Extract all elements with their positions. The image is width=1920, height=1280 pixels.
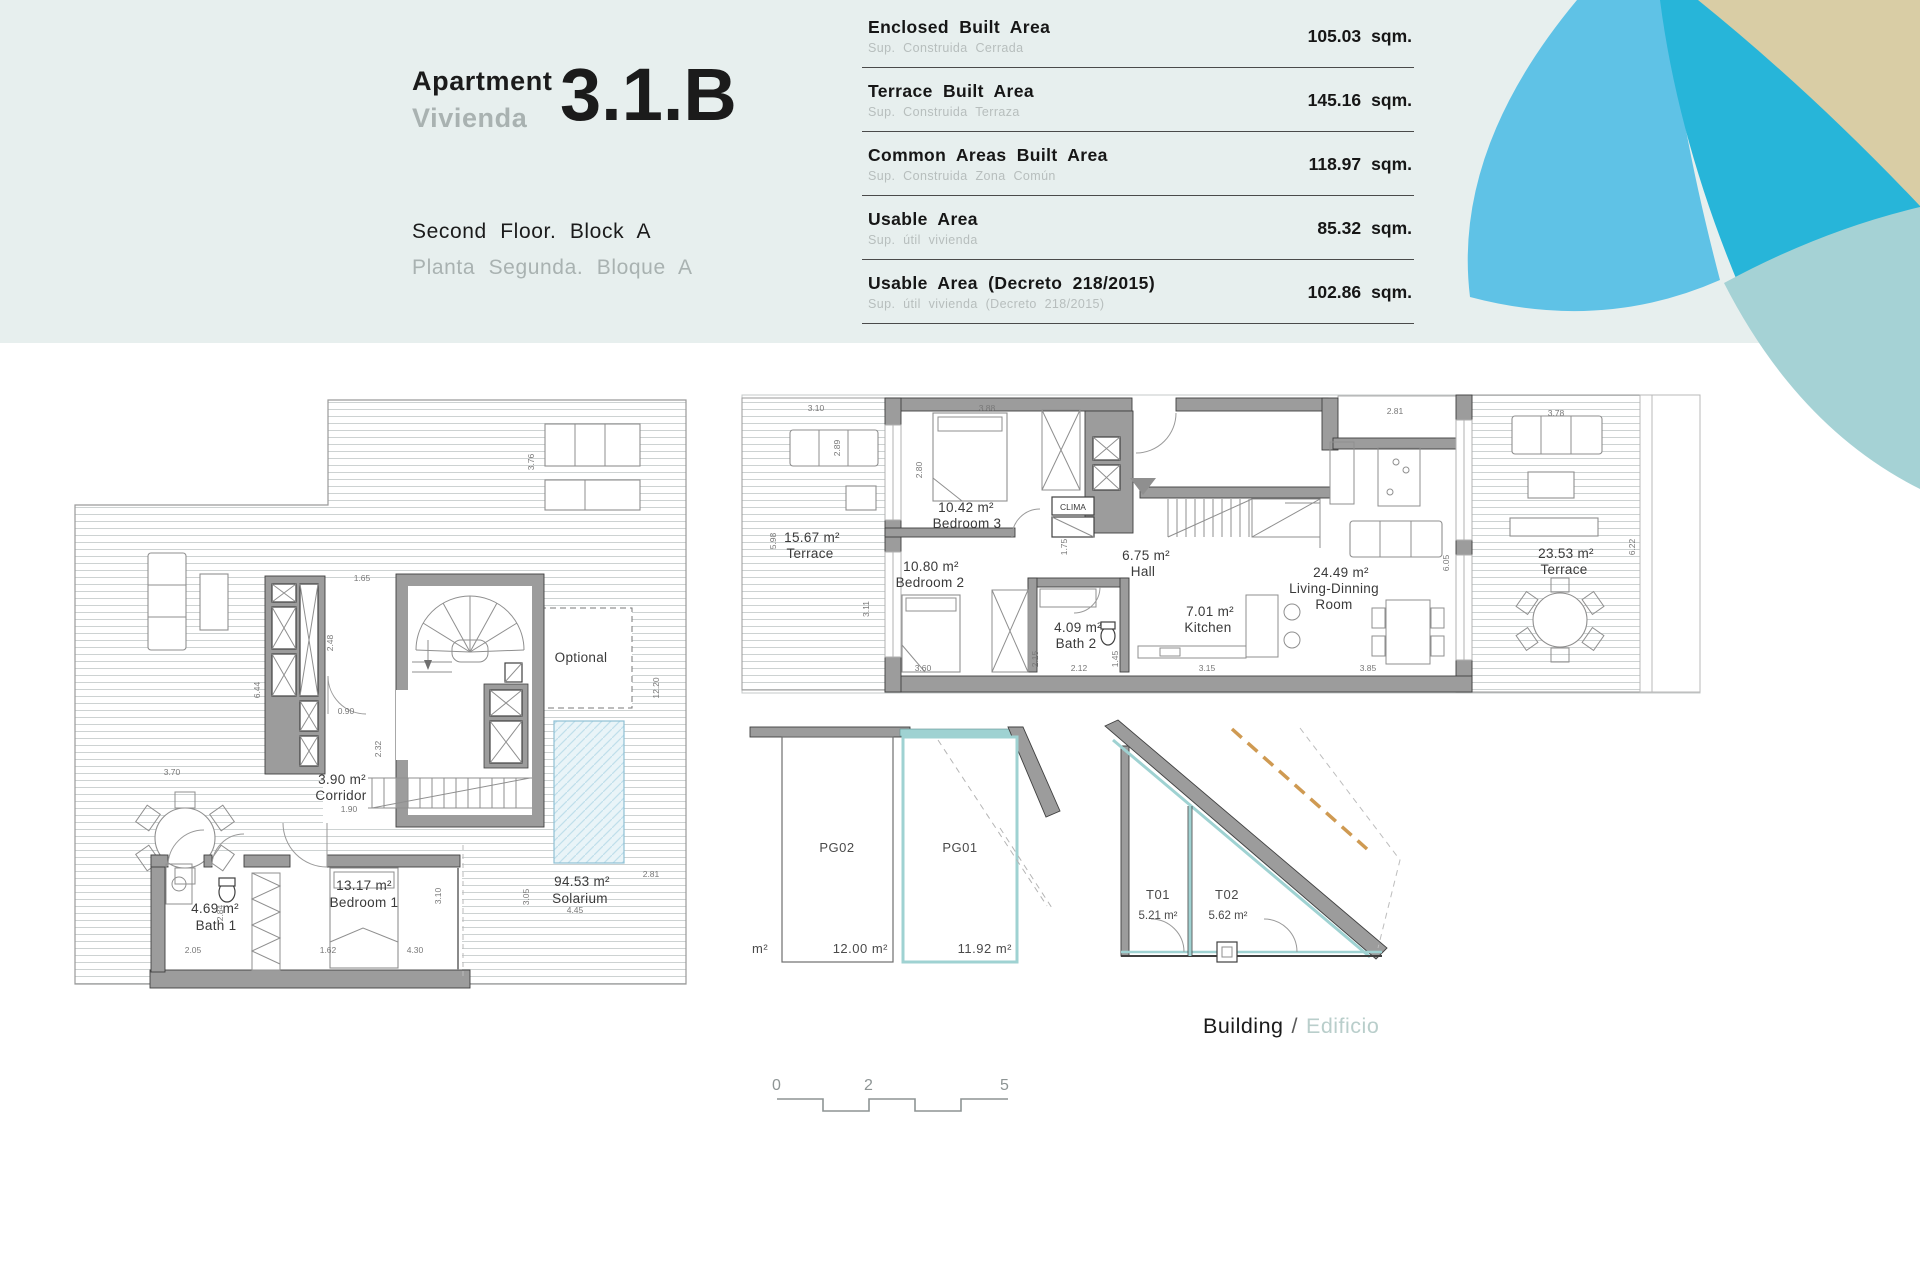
svg-text:1.62: 1.62 [320,945,337,955]
svg-text:3.15: 3.15 [1199,663,1216,673]
row-label-es: Sup. útil vivienda [868,233,978,247]
parking-area: 12.00 m² [833,941,888,956]
room-label: 15.67 m² [784,530,840,545]
svg-text:1.45: 1.45 [1110,650,1120,667]
storage-area: 5.21 m² [1139,910,1178,922]
svg-text:2.81: 2.81 [1387,406,1404,416]
area-summary-table: Enclosed Built Area Sup. Construida Cerr… [862,4,1414,324]
row-label-es: Sup. Construida Terraza [868,105,1034,119]
parking-plan: PG02 PG01 12.00 m² 11.92 m² m² [750,715,1070,970]
svg-text:2.05: 2.05 [185,945,202,955]
apartment-label-es: Vivienda [412,103,527,134]
row-label-es: Sup. Construida Cerrada [868,41,1050,55]
floor-label-en: Second Floor. Block A [412,220,651,244]
plunge-pool [554,721,624,863]
room-label: Terrace [1540,562,1587,577]
storage-plan: T01 T02 5.21 m² 5.62 m² [1095,715,1420,975]
svg-text:1.65: 1.65 [354,573,371,583]
room-label: Living-Dinning [1289,581,1379,596]
row-value: 145.16sqm. [1308,90,1412,111]
svg-text:2.89: 2.89 [832,439,842,456]
storage-label: T02 [1215,887,1239,902]
svg-text:3.76: 3.76 [526,453,536,470]
floor-plan-second-floor: 15.67 m² Terrace 10.42 m² Bedroom 3 10.8… [740,390,1702,702]
svg-text:2.12: 2.12 [1071,663,1088,673]
scale-tick: 0 [772,1077,781,1094]
svg-text:4.30: 4.30 [407,945,424,955]
svg-text:5.98: 5.98 [768,532,778,549]
table-row: Usable Area (Decreto 218/2015) Sup. útil… [862,260,1414,324]
room-label: Corridor [315,788,366,803]
svg-text:2.84: 2.84 [215,904,225,921]
svg-text:6.22: 6.22 [1627,538,1637,555]
room-label: 94.53 m² [554,874,610,889]
parking-label: PG02 [819,840,854,855]
room-label: 3.90 m² [318,772,366,787]
room-label: Room [1315,597,1352,612]
svg-text:0.90: 0.90 [338,706,355,716]
svg-text:3.88: 3.88 [979,403,996,413]
row-value: 105.03sqm. [1308,26,1412,47]
svg-text:3.10: 3.10 [433,887,443,904]
room-label: Solarium [552,891,608,906]
parking-label: PG01 [942,840,977,855]
row-label-es: Sup. útil vivienda (Decreto 218/2015) [868,297,1155,311]
table-row: Usable Area Sup. útil vivienda 85.32sqm. [862,196,1414,260]
svg-text:2.48: 2.48 [325,634,335,651]
svg-text:12.20: 12.20 [651,677,661,699]
room-label: Hall [1131,564,1155,579]
row-label-en: Enclosed Built Area [868,17,1050,38]
room-label: Bedroom 3 [933,516,1002,531]
row-value: 118.97sqm. [1309,154,1412,175]
row-label-en: Usable Area (Decreto 218/2015) [868,273,1155,294]
svg-text:2.80: 2.80 [914,461,924,478]
svg-text:3.85: 3.85 [1360,663,1377,673]
scale-tick: 2 [864,1077,873,1094]
room-label: 10.80 m² [903,559,959,574]
svg-text:1.90: 1.90 [341,804,358,814]
room-label: 7.01 m² [1186,604,1234,619]
room-label: Terrace [786,546,833,561]
parking-area: 11.92 m² [958,941,1013,956]
optional-label: Optional [555,650,608,665]
storage-area: 5.62 m² [1209,910,1248,922]
svg-text:3.11: 3.11 [861,601,871,617]
scale-bar-line [777,1099,1008,1111]
floor-plan-solarium: Optional [60,393,700,993]
row-value: 85.32sqm. [1317,218,1412,239]
floor-label-es: Planta Segunda. Bloque A [412,256,693,280]
building-caption: Building/Edificio [1203,1014,1379,1039]
room-label: 4.09 m² [1054,620,1102,635]
room-label: 13.17 m² [336,878,392,893]
storage-label: T01 [1146,887,1170,902]
adjacent-space-unit: m² [752,941,768,956]
row-label-es: Sup. Construida Zona Común [868,169,1108,183]
room-label: Bedroom 2 [896,575,965,590]
scale-bar: 0 2 5 [765,1062,1021,1120]
table-row: Common Areas Built Area Sup. Construida … [862,132,1414,196]
svg-text:1.75: 1.75 [1059,538,1069,555]
row-label-en: Usable Area [868,209,978,230]
svg-text:3.70: 3.70 [164,767,181,777]
room-label: 23.53 m² [1538,546,1594,561]
room-label: Bedroom 1 [330,895,399,910]
table-row: Enclosed Built Area Sup. Construida Cerr… [862,4,1414,68]
room-label: Kitchen [1184,620,1231,635]
svg-text:3.05: 3.05 [521,888,531,905]
svg-text:4.45: 4.45 [567,905,584,915]
svg-text:3.78: 3.78 [1548,408,1565,418]
wardrobe-core [265,576,325,774]
room-label: Bath 2 [1056,636,1097,651]
unit-number: 3.1.B [560,52,737,137]
svg-text:3.10: 3.10 [808,403,825,413]
svg-text:3.60: 3.60 [915,663,932,673]
room-label: 6.75 m² [1122,548,1170,563]
room-label: 24.49 m² [1313,565,1369,580]
boundary-dashed-orange [1232,729,1367,849]
row-value: 102.86sqm. [1308,282,1412,303]
svg-text:2.32: 2.32 [373,740,383,757]
table-row: Terrace Built Area Sup. Construida Terra… [862,68,1414,132]
apartment-label-en: Apartment [412,66,552,97]
brochure-page: Apartment Vivienda 3.1.B Second Floor. B… [0,0,1920,1280]
svg-text:2.15: 2.15 [1030,650,1040,667]
room-label: 10.42 m² [938,500,994,515]
scale-tick: 5 [1000,1077,1009,1094]
clima-label: CLIMA [1060,502,1086,512]
row-label-en: Common Areas Built Area [868,145,1108,166]
svg-text:6.05: 6.05 [1441,554,1451,571]
row-label-en: Terrace Built Area [868,81,1034,102]
svg-text:6.44: 6.44 [252,681,262,698]
svg-text:2.81: 2.81 [643,869,660,879]
